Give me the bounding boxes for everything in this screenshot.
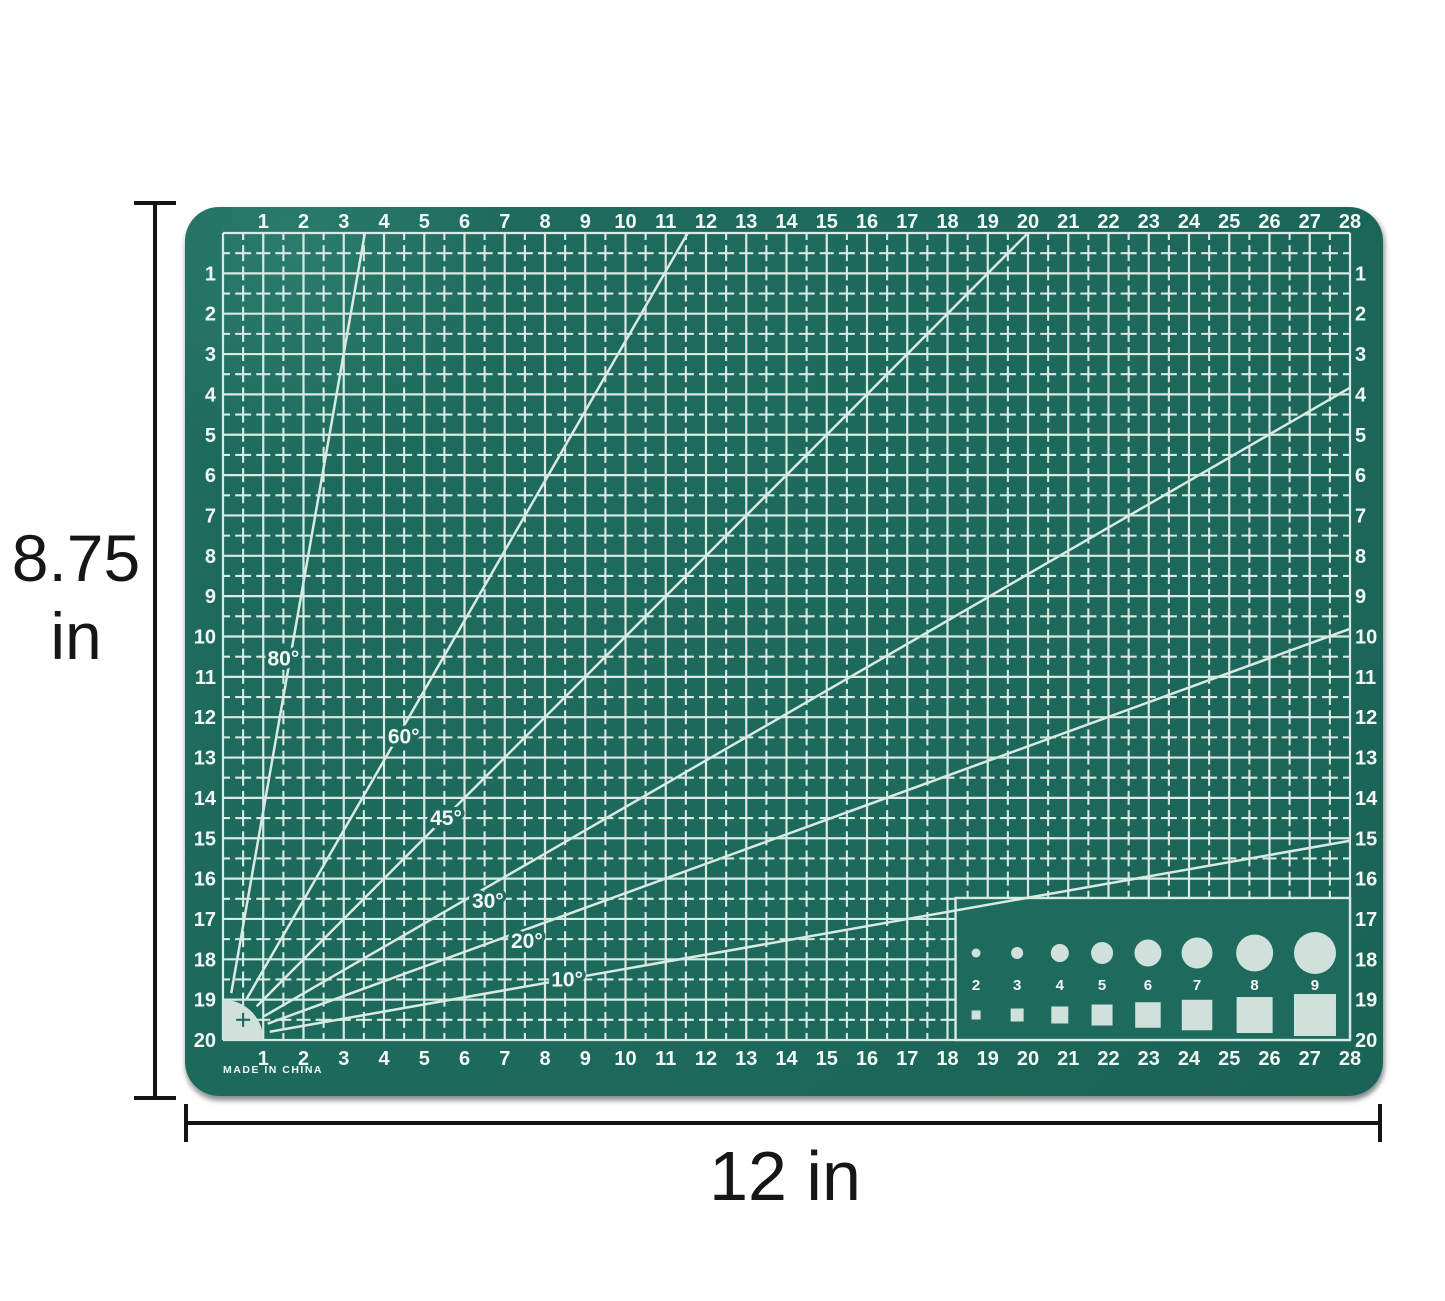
- template-circle-4: [1051, 944, 1069, 962]
- ruler-number: 18: [936, 211, 958, 233]
- ruler-number: 16: [1355, 869, 1377, 891]
- ruler-number: 14: [194, 788, 217, 810]
- angle-label-80: 80°: [267, 648, 299, 671]
- ruler-number: 17: [1355, 909, 1377, 931]
- ruler-number: 17: [896, 211, 918, 233]
- ruler-number: 8: [205, 546, 216, 568]
- ruler-number: 3: [205, 344, 216, 366]
- ruler-number: 19: [977, 211, 999, 233]
- template-square-9: [1294, 994, 1336, 1036]
- width-dimension-line: [186, 1121, 1382, 1125]
- ruler-number: 24: [1178, 211, 1201, 233]
- template-size-label: 6: [1144, 977, 1152, 994]
- height-unit: in: [0, 597, 152, 675]
- template-square-7: [1182, 1000, 1213, 1031]
- ruler-number: 15: [1355, 828, 1377, 850]
- ruler-number: 22: [1097, 1048, 1119, 1070]
- ruler-number: 7: [499, 1048, 510, 1070]
- template-size-label: 2: [972, 977, 980, 994]
- template-circle-2: [972, 949, 981, 958]
- ruler-number: 2: [298, 211, 309, 233]
- template-size-label: 3: [1013, 977, 1021, 994]
- height-dimension-line: [153, 203, 157, 1100]
- angle-ray-45: [257, 233, 1028, 1006]
- ruler-number: 7: [205, 505, 216, 527]
- ruler-number: 3: [338, 1048, 349, 1070]
- ruler-number: 14: [775, 1048, 798, 1070]
- ruler-number: 6: [459, 211, 470, 233]
- template-circle-9: [1294, 932, 1336, 974]
- ruler-number: 6: [1355, 465, 1366, 487]
- ruler-number: 9: [580, 1048, 591, 1070]
- ruler-number: 16: [856, 211, 878, 233]
- ruler-number: 20: [1355, 1030, 1377, 1052]
- ruler-number: 4: [378, 1048, 390, 1070]
- cutting-mat-graphic: 80°60°45°30°20°10°2345678912345678910111…: [185, 207, 1383, 1096]
- ruler-number: 5: [419, 211, 430, 233]
- angle-label-20: 20°: [511, 930, 543, 953]
- ruler-number: 8: [539, 1048, 550, 1070]
- ruler-number: 1: [258, 211, 269, 233]
- ruler-number: 6: [459, 1048, 470, 1070]
- ruler-top-numbers: 1234567891011121314151617181920212223242…: [258, 211, 1361, 233]
- ruler-number: 5: [205, 425, 216, 447]
- template-square-4: [1051, 1007, 1068, 1024]
- ruler-number: 11: [655, 1048, 676, 1070]
- made-in-marking: MADE IN CHINA: [223, 1064, 323, 1076]
- ruler-number: 18: [936, 1048, 958, 1070]
- ruler-number: 21: [1057, 211, 1079, 233]
- template-size-label: 8: [1250, 977, 1258, 994]
- width-dimension-cap-right: [1378, 1104, 1382, 1142]
- ruler-number: 13: [1355, 748, 1377, 770]
- ruler-number: 11: [655, 211, 676, 233]
- ruler-number: 18: [1355, 949, 1377, 971]
- template-circle-6: [1134, 940, 1161, 967]
- ruler-number: 15: [816, 211, 838, 233]
- ruler-number: 9: [205, 586, 216, 608]
- ruler-number: 13: [194, 748, 216, 770]
- template-size-label: 9: [1311, 977, 1319, 994]
- angle-label-10: 10°: [551, 968, 583, 991]
- template-square-6: [1135, 1002, 1161, 1028]
- ruler-bottom-numbers: 1234567891011121314151617181920212223242…: [258, 1048, 1361, 1070]
- template-circle-5: [1091, 942, 1113, 964]
- ruler-left-numbers: 1234567891011121314151617181920: [194, 263, 217, 1052]
- ruler-number: 12: [194, 707, 216, 729]
- template-circle-8: [1236, 935, 1273, 972]
- ruler-number: 2: [205, 304, 216, 326]
- ruler-number: 4: [1355, 384, 1367, 406]
- template-size-label: 5: [1098, 977, 1106, 994]
- height-value: 8.75: [0, 519, 152, 597]
- ruler-number: 4: [378, 211, 390, 233]
- ruler-number: 8: [1355, 546, 1366, 568]
- ruler-number: 10: [614, 1048, 636, 1070]
- template-size-label: 4: [1056, 977, 1065, 994]
- ruler-number: 10: [1355, 627, 1377, 649]
- ruler-number: 24: [1178, 1048, 1201, 1070]
- ruler-number: 22: [1097, 211, 1119, 233]
- ruler-number: 27: [1299, 211, 1321, 233]
- ruler-number: 13: [735, 1048, 757, 1070]
- ruler-number: 9: [580, 211, 591, 233]
- ruler-number: 3: [1355, 344, 1366, 366]
- template-square-8: [1237, 997, 1273, 1033]
- ruler-number: 28: [1339, 211, 1361, 233]
- ruler-number: 18: [194, 949, 216, 971]
- template-square-2: [972, 1011, 981, 1020]
- template-size-label: 7: [1193, 977, 1201, 994]
- ruler-number: 20: [1017, 211, 1039, 233]
- ruler-number: 20: [1017, 1048, 1039, 1070]
- ruler-number: 1: [1355, 263, 1366, 285]
- made-in-text: MADE IN CHINA: [223, 1064, 323, 1076]
- ruler-number: 27: [1299, 1048, 1321, 1070]
- angle-label-30: 30°: [472, 890, 504, 913]
- ruler-number: 9: [1355, 586, 1366, 608]
- cutting-mat: 80°60°45°30°20°10°2345678912345678910111…: [185, 207, 1383, 1096]
- ruler-number: 10: [194, 627, 216, 649]
- ruler-number: 8: [539, 211, 550, 233]
- angle-label-45: 45°: [430, 807, 462, 830]
- ruler-number: 19: [194, 990, 216, 1012]
- ruler-number: 12: [1355, 707, 1377, 729]
- ruler-number: 1: [205, 263, 216, 285]
- width-dimension-label: 12 in: [610, 1136, 960, 1216]
- ruler-number: 5: [419, 1048, 430, 1070]
- ruler-number: 5: [1355, 425, 1366, 447]
- ruler-number: 19: [977, 1048, 999, 1070]
- ruler-number: 7: [1355, 505, 1366, 527]
- width-dimension-cap-left: [184, 1104, 188, 1142]
- ruler-number: 26: [1258, 1048, 1280, 1070]
- ruler-number: 13: [735, 211, 757, 233]
- ruler-number: 4: [205, 384, 217, 406]
- ruler-number: 3: [338, 211, 349, 233]
- ruler-number: 23: [1138, 211, 1160, 233]
- ruler-number: 23: [1138, 1048, 1160, 1070]
- ruler-number: 16: [194, 869, 216, 891]
- ruler-number: 11: [195, 667, 216, 689]
- product-photo-page: { "dimensions": { "height_value": "8.75"…: [0, 0, 1445, 1301]
- ruler-number: 6: [205, 465, 216, 487]
- ruler-number: 17: [896, 1048, 918, 1070]
- ruler-number: 2: [1355, 304, 1366, 326]
- ruler-number: 12: [695, 211, 717, 233]
- ruler-number: 14: [775, 211, 798, 233]
- ruler-number: 12: [695, 1048, 717, 1070]
- ruler-number: 26: [1258, 211, 1280, 233]
- ruler-number: 7: [499, 211, 510, 233]
- ruler-number: 20: [194, 1030, 216, 1052]
- template-square-5: [1092, 1005, 1113, 1026]
- angle-label-60: 60°: [388, 726, 420, 749]
- height-dimension-label: 8.75 in: [0, 519, 152, 675]
- ruler-number: 19: [1355, 990, 1377, 1012]
- ruler-number: 14: [1355, 788, 1378, 810]
- template-square-3: [1011, 1009, 1024, 1022]
- ruler-number: 10: [614, 211, 636, 233]
- height-dimension-cap-bottom: [134, 1096, 176, 1100]
- ruler-number: 25: [1218, 211, 1240, 233]
- template-circle-7: [1182, 938, 1213, 969]
- ruler-number: 16: [856, 1048, 878, 1070]
- height-dimension-cap-top: [134, 201, 176, 205]
- ruler-number: 17: [194, 909, 216, 931]
- ruler-number: 25: [1218, 1048, 1240, 1070]
- ruler-number: 11: [1355, 667, 1376, 689]
- template-circle-3: [1011, 947, 1023, 959]
- ruler-number: 21: [1057, 1048, 1079, 1070]
- ruler-number: 15: [816, 1048, 838, 1070]
- ruler-right-numbers: 1234567891011121314151617181920: [1355, 263, 1378, 1052]
- ruler-number: 15: [194, 828, 216, 850]
